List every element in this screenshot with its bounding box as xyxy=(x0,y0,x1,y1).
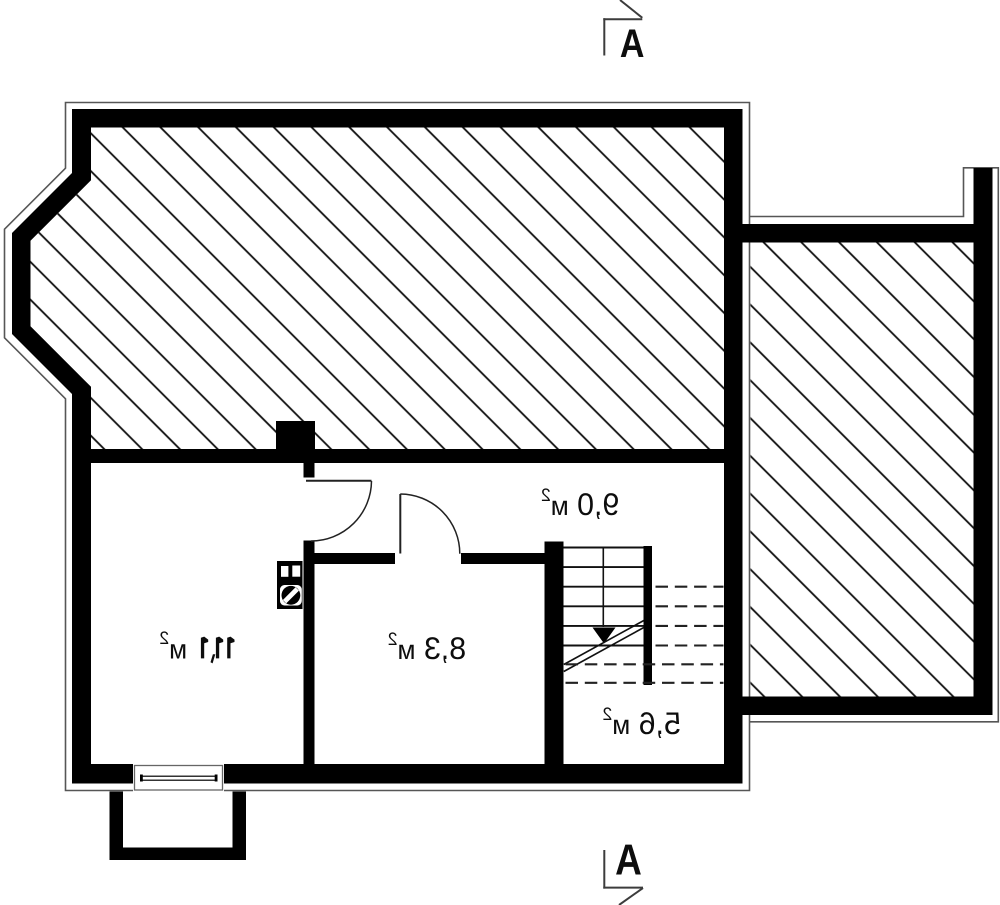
svg-text:9,0 м2: 9,0 м2 xyxy=(541,485,619,522)
svg-text:5,6 м2: 5,6 м2 xyxy=(603,704,681,741)
svg-text:8,3 м2: 8,3 м2 xyxy=(388,629,466,666)
svg-text:A: A xyxy=(620,22,645,66)
svg-text:A: A xyxy=(615,836,642,884)
